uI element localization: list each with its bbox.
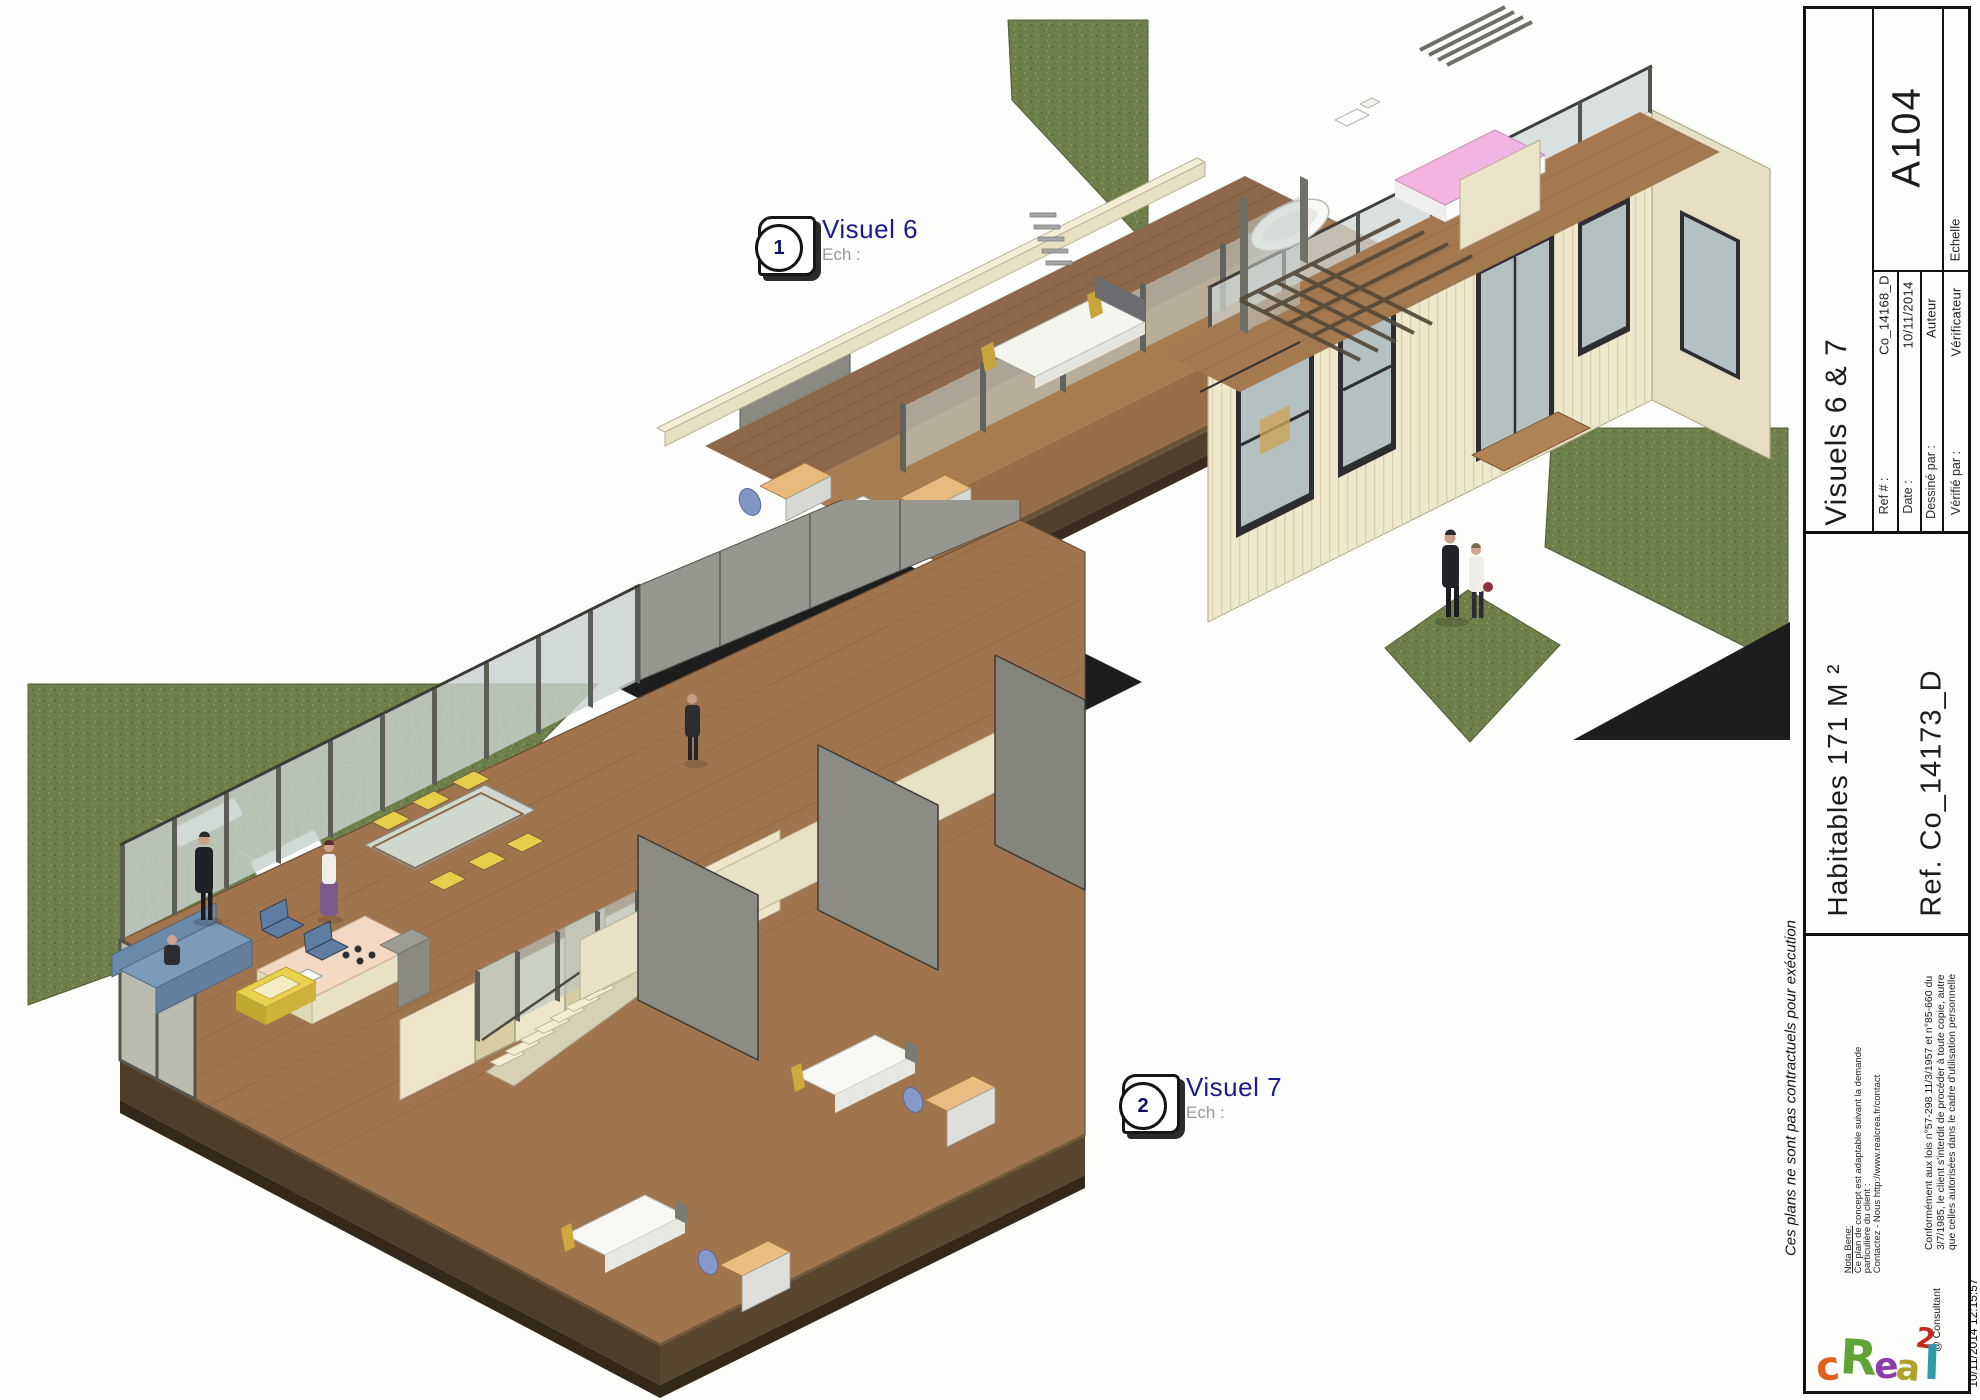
view-number: 2 [1137, 1095, 1148, 1118]
visual-7-render [20, 500, 1180, 1400]
view-callout-symbol: 1 [758, 216, 816, 276]
ref-value: Co_14168_D [1877, 275, 1892, 355]
ref-label: Ref # : [1877, 478, 1891, 515]
view-callout-symbol: 2 [1122, 1074, 1180, 1134]
view-title: Visuel 7 [1186, 1074, 1282, 1100]
building-v7 [80, 500, 1120, 1398]
view-label-visuel-7: 2 Visuel 7 Ech : [1122, 1074, 1282, 1134]
checked-by-label: Vérifié par : [1949, 451, 1963, 515]
date-value: 10/11/2014 [1901, 281, 1916, 348]
legal-line: que celles autorisées dans le cadre d'ut… [1947, 974, 1959, 1250]
nota-bene-line: Contactez - Nous http://www.realcrea.fr/… [1873, 1047, 1883, 1274]
drawn-by-value: Auteur [1924, 298, 1939, 338]
view-title: Visuel 6 [822, 216, 918, 242]
date-label: Date : [1901, 480, 1915, 513]
sheet-title: Visuels 6 & 7 [1820, 338, 1854, 526]
view-number: 1 [773, 237, 784, 260]
nota-bene-block: Nota Bene: Ce plan de concept est adapta… [1844, 1047, 1882, 1274]
reference-number: Ref. Co_14173_D [1916, 669, 1949, 916]
print-timestamp: 10/11/2014 12:15:57 [1966, 1278, 1980, 1387]
view-number-circle: 2 [1119, 1082, 1167, 1130]
view-label-visuel-6: 1 Visuel 6 Ech : [758, 216, 918, 276]
non-contractual-note: Ces plans ne sont pas contractuels pour … [1783, 920, 1800, 1256]
legal-notice-block: Conformément aux lois n°57-298 11/3/1957… [1924, 974, 1959, 1250]
legal-line: Conformément aux lois n°57-298 11/3/1957… [1924, 974, 1936, 1250]
crea-logo: c R e a 2 l [1816, 1322, 1946, 1396]
roof-slats-v6 [1420, 7, 1532, 65]
checked-by-value: Vérificateur [1949, 287, 1964, 356]
logo-letter: l [1923, 1336, 1941, 1391]
drawn-by-label: Dessiné par : [1924, 445, 1938, 519]
drawing-sheet: 1 Visuel 6 Ech : 2 Visuel 7 Ech : A104 E… [0, 0, 1980, 1400]
sheet-number: A104 [1885, 86, 1930, 187]
view-number-circle: 1 [755, 224, 803, 272]
habitable-area: Habitables 171 M ² [1822, 663, 1854, 916]
scale-header: Echelle [1948, 219, 1963, 262]
view-scale-label: Ech : [1186, 1104, 1282, 1121]
view-scale-label: Ech : [822, 246, 918, 263]
